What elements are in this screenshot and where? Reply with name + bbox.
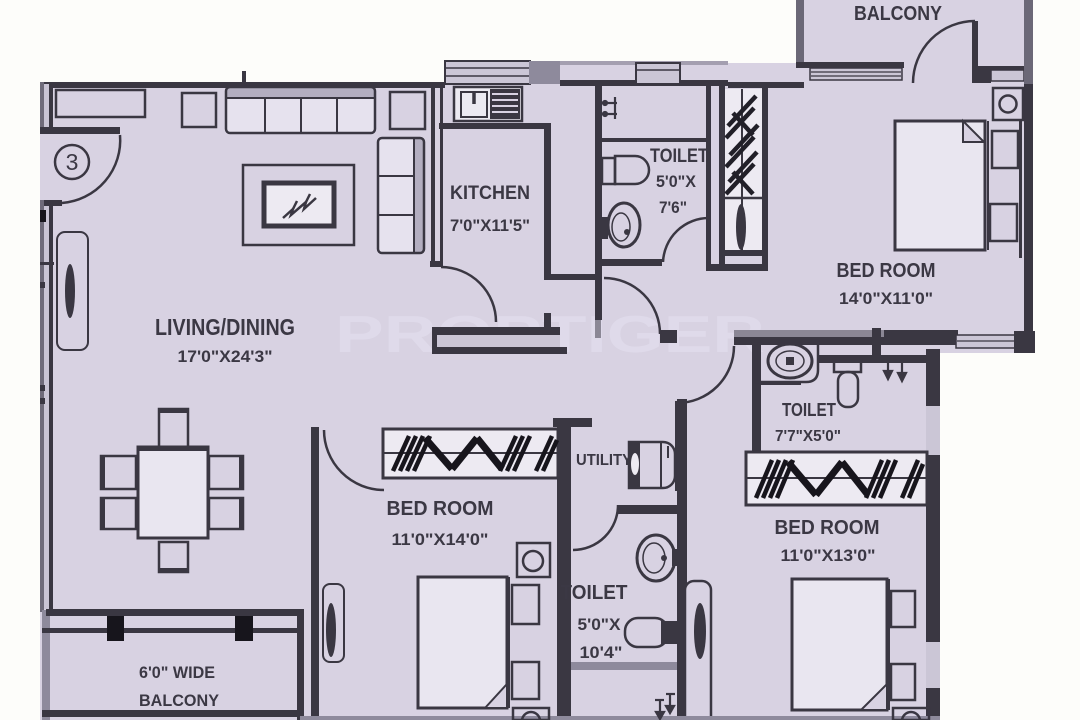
svg-text:UTILITY: UTILITY bbox=[576, 452, 632, 469]
svg-text:5'0"X: 5'0"X bbox=[578, 615, 622, 634]
svg-text:TOILET: TOILET bbox=[782, 400, 836, 420]
svg-text:KITCHEN: KITCHEN bbox=[450, 183, 530, 204]
svg-text:BED ROOM: BED ROOM bbox=[837, 260, 936, 282]
svg-text:14'0"X11'0": 14'0"X11'0" bbox=[839, 289, 933, 308]
svg-text:11'0"X13'0": 11'0"X13'0" bbox=[781, 546, 876, 565]
svg-text:5'0"X: 5'0"X bbox=[656, 172, 697, 191]
svg-text:BALCONY: BALCONY bbox=[854, 3, 943, 25]
svg-text:6'0" WIDE: 6'0" WIDE bbox=[139, 663, 215, 682]
svg-text:7'7"X5'0": 7'7"X5'0" bbox=[775, 428, 841, 445]
svg-text:7'6": 7'6" bbox=[659, 198, 687, 217]
svg-text:7'0"X11'5": 7'0"X11'5" bbox=[450, 216, 530, 235]
svg-text:BED ROOM: BED ROOM bbox=[387, 498, 494, 520]
svg-text:LIVING/DINING: LIVING/DINING bbox=[155, 314, 295, 340]
svg-text:TOILET: TOILET bbox=[650, 146, 708, 167]
svg-text:BALCONY: BALCONY bbox=[139, 691, 220, 710]
svg-text:11'0"X14'0": 11'0"X14'0" bbox=[392, 530, 489, 549]
svg-text:17'0"X24'3": 17'0"X24'3" bbox=[178, 347, 273, 366]
svg-text:10'4": 10'4" bbox=[580, 643, 623, 662]
svg-text:TOILET: TOILET bbox=[561, 582, 628, 604]
svg-text:BED ROOM: BED ROOM bbox=[775, 517, 880, 539]
svg-text:3: 3 bbox=[66, 149, 79, 175]
